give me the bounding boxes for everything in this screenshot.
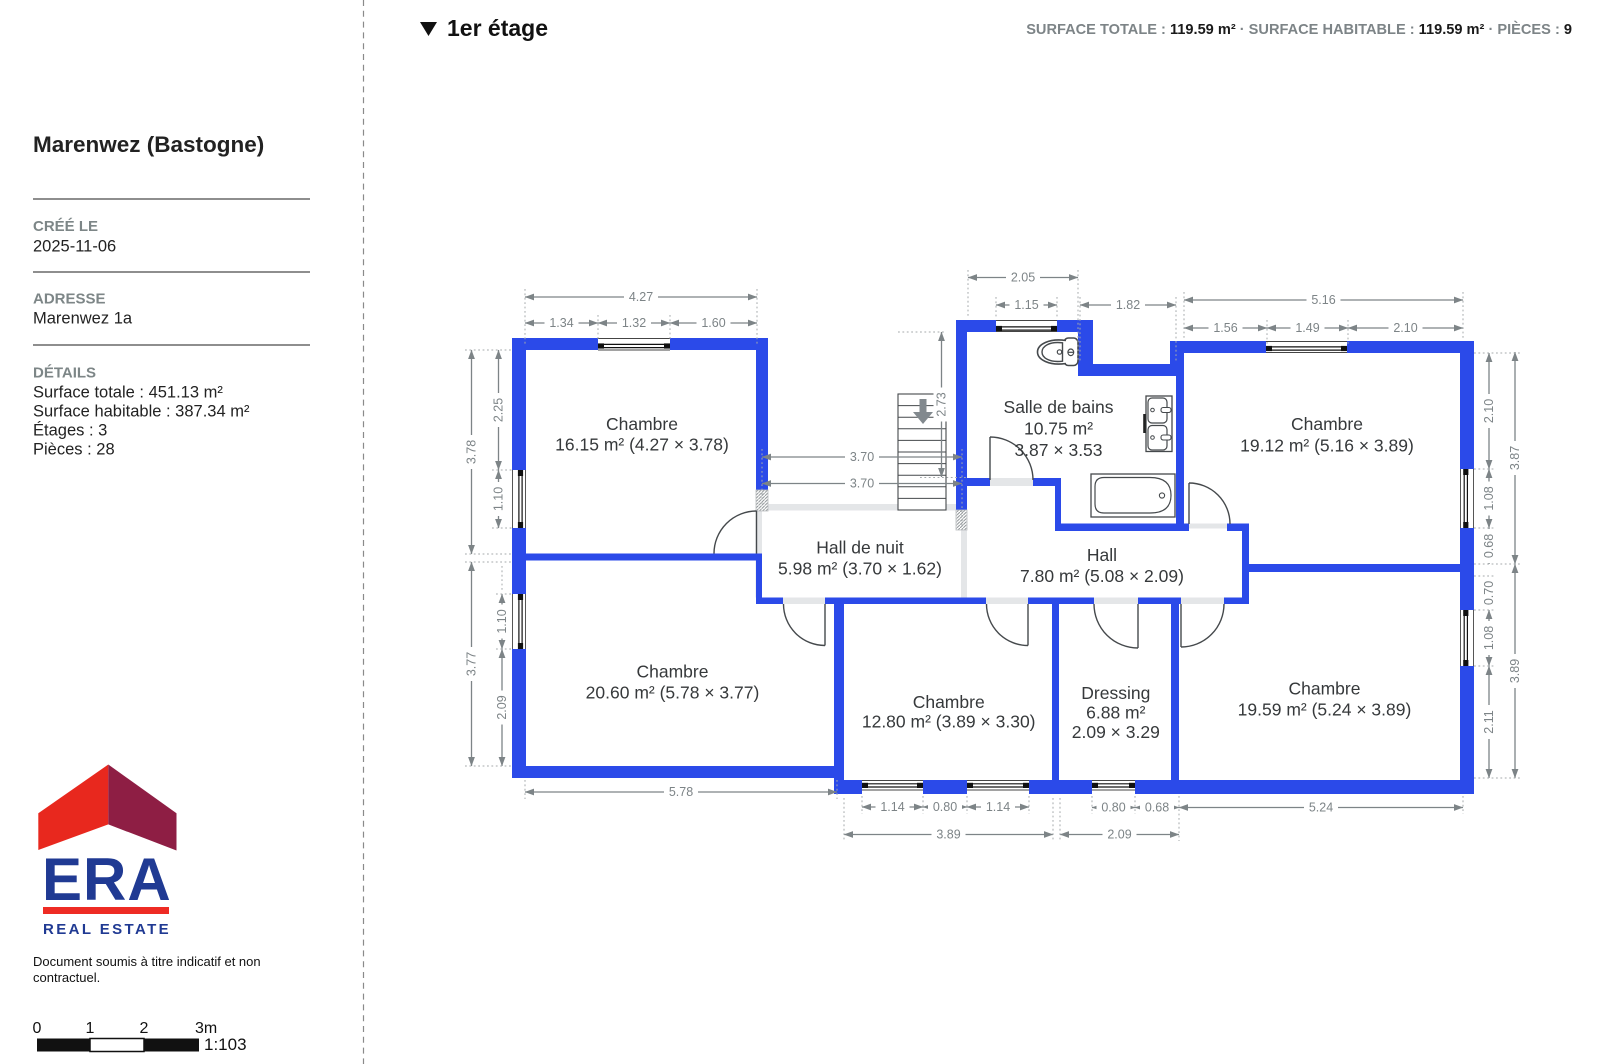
svg-text:1.49: 1.49 (1295, 321, 1319, 335)
svg-text:5.16: 5.16 (1311, 293, 1335, 307)
svg-text:3.77: 3.77 (465, 652, 479, 676)
svg-text:3.89: 3.89 (1508, 659, 1522, 683)
svg-text:contractuel.: contractuel. (33, 970, 100, 985)
svg-text:DÉTAILS: DÉTAILS (33, 365, 96, 382)
svg-text:12.80 m² (3.89 × 3.30): 12.80 m² (3.89 × 3.30) (862, 712, 1036, 732)
svg-text:2.05: 2.05 (1011, 271, 1035, 285)
svg-text:Chambre: Chambre (913, 692, 985, 712)
svg-text:1er étage: 1er étage (447, 15, 548, 41)
svg-text:1.82: 1.82 (1116, 298, 1140, 312)
svg-text:2.73: 2.73 (935, 392, 949, 416)
svg-text:Dressing: Dressing (1081, 683, 1150, 703)
svg-text:0.68: 0.68 (1145, 801, 1169, 815)
svg-text:Chambre: Chambre (1291, 414, 1363, 434)
svg-text:Pièces : 28: Pièces : 28 (33, 441, 115, 459)
svg-text:Chambre: Chambre (1289, 679, 1361, 699)
svg-text:1.32: 1.32 (622, 316, 646, 330)
svg-text:2: 2 (140, 1020, 149, 1037)
svg-text:10.75 m²: 10.75 m² (1024, 419, 1093, 439)
svg-text:SURFACE TOTALE : 119.59 m² · S: SURFACE TOTALE : 119.59 m² · SURFACE HAB… (1026, 21, 1572, 38)
svg-text:CRÉÉ LE: CRÉÉ LE (33, 218, 98, 235)
svg-text:3.78: 3.78 (465, 440, 479, 464)
svg-text:1.08: 1.08 (1482, 486, 1496, 510)
svg-text:5.78: 5.78 (669, 785, 693, 799)
svg-text:2.25: 2.25 (492, 398, 506, 422)
svg-text:Document soumis à titre indica: Document soumis à titre indicatif et non (33, 954, 261, 969)
svg-text:2.10: 2.10 (1482, 399, 1496, 423)
svg-text:ADRESSE: ADRESSE (33, 291, 106, 308)
svg-text:Étages : 3: Étages : 3 (33, 421, 107, 440)
svg-text:0.68: 0.68 (1482, 534, 1496, 558)
svg-text:0: 0 (33, 1020, 42, 1037)
svg-text:1.08: 1.08 (1482, 626, 1496, 650)
svg-text:Salle de bains: Salle de bains (1004, 397, 1114, 417)
svg-text:0.80: 0.80 (933, 800, 957, 814)
svg-text:1.56: 1.56 (1213, 321, 1237, 335)
svg-text:Surface totale : 451.13 m²: Surface totale : 451.13 m² (33, 384, 223, 402)
svg-text:Marenwez (Bastogne): Marenwez (Bastogne) (33, 132, 264, 157)
svg-text:Hall de nuit: Hall de nuit (816, 538, 904, 558)
svg-text:7.80 m² (5.08 × 2.09): 7.80 m² (5.08 × 2.09) (1020, 566, 1184, 586)
svg-text:REAL ESTATE: REAL ESTATE (43, 921, 171, 938)
svg-text:Chambre: Chambre (606, 414, 678, 434)
svg-text:5.24: 5.24 (1309, 801, 1333, 815)
svg-text:2.11: 2.11 (1482, 710, 1496, 733)
svg-text:2.09 × 3.29: 2.09 × 3.29 (1072, 722, 1160, 742)
svg-text:0.70: 0.70 (1482, 581, 1496, 605)
svg-text:3.87: 3.87 (1508, 446, 1522, 470)
svg-text:Hall: Hall (1087, 545, 1117, 565)
svg-text:1.14: 1.14 (986, 800, 1010, 814)
svg-text:1:103: 1:103 (204, 1035, 247, 1054)
svg-text:1.10: 1.10 (495, 609, 509, 633)
svg-text:Surface habitable : 387.34 m²: Surface habitable : 387.34 m² (33, 403, 250, 421)
svg-text:Chambre: Chambre (637, 662, 709, 682)
svg-text:2.10: 2.10 (1393, 321, 1417, 335)
svg-text:1.60: 1.60 (701, 316, 725, 330)
svg-text:ERA: ERA (42, 846, 172, 913)
svg-text:5.98 m² (3.70 × 1.62): 5.98 m² (3.70 × 1.62) (778, 559, 942, 579)
svg-text:3.70: 3.70 (850, 477, 874, 491)
svg-text:3.89: 3.89 (936, 828, 960, 842)
svg-text:20.60 m² (5.78 × 3.77): 20.60 m² (5.78 × 3.77) (586, 683, 760, 703)
svg-text:2025-11-06: 2025-11-06 (33, 238, 116, 256)
svg-text:6.88 m²: 6.88 m² (1086, 703, 1145, 723)
svg-text:3.87 × 3.53: 3.87 × 3.53 (1014, 440, 1102, 460)
svg-text:2.09: 2.09 (1107, 828, 1131, 842)
svg-text:19.59 m² (5.24 × 3.89): 19.59 m² (5.24 × 3.89) (1238, 700, 1412, 720)
svg-text:1.34: 1.34 (549, 316, 573, 330)
svg-text:1.15: 1.15 (1014, 298, 1038, 312)
svg-text:0.80: 0.80 (1101, 801, 1125, 815)
svg-text:2.09: 2.09 (495, 695, 509, 719)
svg-text:1.14: 1.14 (880, 800, 904, 814)
svg-text:3.70: 3.70 (850, 450, 874, 464)
svg-text:4.27: 4.27 (629, 290, 653, 304)
svg-text:Marenwez 1a: Marenwez 1a (33, 310, 133, 328)
svg-text:16.15 m² (4.27 × 3.78): 16.15 m² (4.27 × 3.78) (555, 435, 729, 455)
svg-text:1: 1 (86, 1020, 95, 1037)
svg-text:1.10: 1.10 (492, 487, 506, 511)
svg-text:19.12 m² (5.16 × 3.89): 19.12 m² (5.16 × 3.89) (1240, 436, 1414, 456)
